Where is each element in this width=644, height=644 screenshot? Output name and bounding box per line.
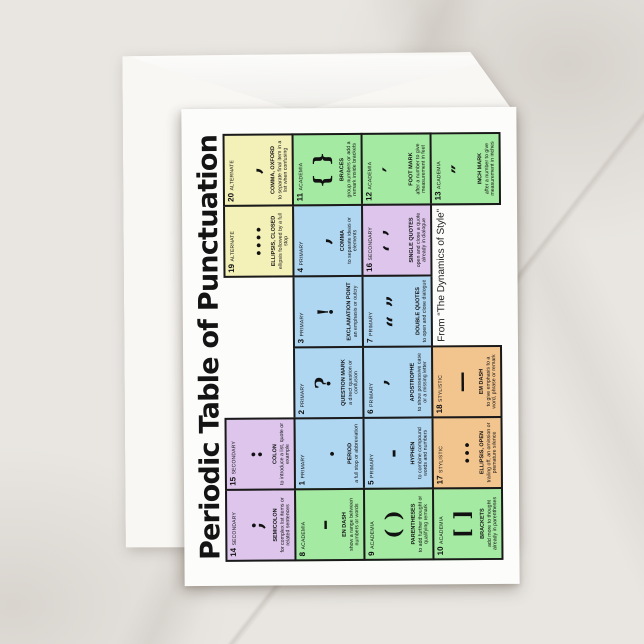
element-number: 16 <box>366 263 374 272</box>
element-symbol: ? <box>306 351 341 414</box>
element-cell-foot-mark: 12ACADEMIA′FOOT MARKafter a number to gi… <box>361 132 433 205</box>
element-cell-double-quotes: 7PRIMARY“ ”DOUBLE QUOTESto open and clos… <box>362 274 434 347</box>
element-description: a full stop or abbreviation <box>354 422 360 485</box>
element-description: after a number to give measurement in fe… <box>415 137 427 200</box>
marble-background: Periodic Table of Punctuation From “The … <box>0 0 644 644</box>
element-name: COMMA, OXFORD <box>270 139 276 202</box>
element-cell-parentheses: 9ACADEMIA( )PARENTHESESto add further th… <box>363 487 435 560</box>
element-category: SECONDARY <box>232 441 237 474</box>
element-cell-comma: 4PRIMARY,COMMAto separate ideas or eleme… <box>292 204 364 277</box>
element-number: 6 <box>367 409 375 414</box>
element-number: 5 <box>367 480 375 485</box>
element-cell-em-dash: 18STYLISTIC—EM DASHto give emphasis to a… <box>431 345 503 418</box>
element-symbol: [ ] <box>445 492 480 555</box>
element-symbol: ′ <box>373 138 408 201</box>
element-cell-brackets: 10ACADEMIA[ ]BRACKETSadd more to thought… <box>432 487 504 560</box>
element-description: show a range between numbers or words <box>348 493 360 556</box>
element-symbol: ! <box>305 280 346 343</box>
element-symbol: ’ <box>375 351 410 414</box>
element-cell-period: 1PRIMARY.PERIODa full stop or abbreviati… <box>293 417 365 490</box>
element-symbol: .... <box>236 210 271 273</box>
element-number: 3 <box>297 339 305 344</box>
element-name: SEMICOLON <box>272 494 278 557</box>
element-description: group numbers or add a remark inside bra… <box>346 138 358 201</box>
element-category: STYLISTIC <box>438 375 443 402</box>
element-description: a direct question or confusion <box>347 351 359 414</box>
element-name: COMMA <box>339 209 345 272</box>
element-symbol: ; <box>238 494 273 557</box>
element-description: to show possessive case or a missing let… <box>416 350 428 413</box>
element-cell-comma-oxford: 20ALTERNATE,COMMA, OXFORDto separate fin… <box>223 133 295 206</box>
element-name: INCH MARK <box>477 137 483 200</box>
element-description: to add further thought or qualifying rem… <box>417 492 429 555</box>
element-description: to combine compound words and numbers <box>417 421 429 484</box>
element-symbol: , <box>305 209 340 272</box>
element-number: 20 <box>227 193 235 202</box>
element-name: DOUBLE QUOTES <box>415 280 421 343</box>
element-description: add more to thought already in parenthes… <box>486 492 498 555</box>
element-name: PARENTHESES <box>410 493 416 556</box>
element-symbol: ‘ ’ <box>374 209 409 272</box>
element-category: ACADEMIA <box>368 162 373 190</box>
element-name: BRACES <box>339 138 345 201</box>
element-description: ellipsis followed by a full stop <box>277 209 289 272</box>
element-category: PRIMARY <box>300 312 305 336</box>
element-category: ACADEMIA <box>299 163 304 191</box>
element-number: 19 <box>228 264 236 273</box>
element-category: PRIMARY <box>370 454 375 478</box>
element-number: 1 <box>298 481 306 486</box>
element-number: 18 <box>436 404 444 413</box>
element-number: 10 <box>437 546 445 555</box>
element-number: 8 <box>299 552 307 557</box>
element-category: PRIMARY <box>369 312 374 336</box>
element-name: QUESTION MARK <box>340 351 346 414</box>
element-description: to give emphasis to a word, phrase or re… <box>485 350 497 413</box>
element-number: 14 <box>230 548 238 557</box>
element-cell-exclamation-point: 3PRIMARY!EXCLAMATION POINTan emphasis or… <box>293 275 365 348</box>
element-symbol: ... <box>444 421 479 484</box>
element-symbol: { } <box>304 138 339 201</box>
element-number: 7 <box>366 338 374 343</box>
element-description: trailing off, an omission or premature s… <box>486 421 498 484</box>
element-cell-ellipsis-open: 17STYLISTIC...ELLIPSIS, OPENtrailing off… <box>431 416 503 489</box>
element-number: 15 <box>229 477 237 486</box>
element-description: after a number to give measurement in in… <box>484 137 496 200</box>
element-name: BRACKETS <box>479 492 485 555</box>
element-symbol: . <box>306 422 347 485</box>
element-name: ELLIPSIS, CLOSED <box>270 210 276 273</box>
element-category: PRIMARY <box>301 454 306 478</box>
element-cell-inch-mark: 13ACADEMIA″INCH MARKafter a number to gi… <box>430 132 502 205</box>
element-number: 17 <box>436 475 444 484</box>
element-name: FOOT MARK <box>408 138 414 201</box>
element-description: to introduce a list, quote or example <box>279 422 291 485</box>
element-category: STYLISTIC <box>439 446 444 473</box>
element-cell-colon: 15SECONDARY:COLONto introduce a list, qu… <box>224 417 296 490</box>
element-number: 13 <box>434 191 442 200</box>
element-category: SECONDARY <box>232 512 237 545</box>
element-symbol: : <box>237 423 272 486</box>
element-symbol: “ ” <box>374 280 415 343</box>
envelope-flap <box>122 52 506 114</box>
element-description: for complex list items or related senten… <box>279 493 291 556</box>
element-cell-braces: 11ACADEMIA{ }BRACESgroup numbers or add … <box>292 133 364 206</box>
element-category: PRIMARY <box>300 383 305 407</box>
element-description: to open and close dialogue <box>422 279 428 342</box>
element-name: HYPHEN <box>410 422 416 485</box>
element-symbol: ″ <box>442 137 477 200</box>
element-category: ALTERNATE <box>230 160 235 191</box>
element-name: ELLIPSIS, OPEN <box>479 421 485 484</box>
element-number: 12 <box>365 192 373 201</box>
element-category: SECONDARY <box>368 227 373 260</box>
element-number: 4 <box>297 268 305 273</box>
element-symbol: – <box>307 493 342 556</box>
attribution-text: From “The Dynamics of Style” <box>431 204 501 346</box>
element-number: 9 <box>368 551 376 556</box>
card-title: Periodic Table of Punctuation <box>192 135 226 560</box>
element-name: EM DASH <box>478 350 484 413</box>
element-category: ACADEMIA <box>370 521 375 549</box>
element-cell-en-dash: 8ACADEMIA–EN DASHshow a range between nu… <box>294 488 366 561</box>
element-name: PERIOD <box>347 422 353 485</box>
element-symbol: — <box>444 350 479 413</box>
element-category: ALTERNATE <box>230 231 235 262</box>
card-design: Periodic Table of Punctuation From “The … <box>181 107 519 585</box>
element-category: ACADEMIA <box>437 161 442 189</box>
element-category: PRIMARY <box>369 383 374 407</box>
element-description: an emphasis or outcry <box>353 280 359 343</box>
element-category: PRIMARY <box>299 241 304 265</box>
element-category: ACADEMIA <box>439 516 444 544</box>
element-cell-ellipsis-closed: 19ALTERNATE....ELLIPSIS, CLOSEDellipsis … <box>223 204 295 277</box>
element-cell-semicolon: 14SECONDARY;SEMICOLONfor complex list it… <box>225 488 297 561</box>
element-description: to separate final item in a list when co… <box>277 138 289 201</box>
element-symbol: ( ) <box>376 493 411 556</box>
punctuation-card: Periodic Table of Punctuation From “The … <box>181 107 519 586</box>
element-cell-question-mark: 2PRIMARY?QUESTION MARKa direct question … <box>293 346 365 419</box>
element-symbol: , <box>235 139 270 202</box>
punctuation-grid: From “The Dynamics of Style” 1PRIMARY.PE… <box>224 133 503 561</box>
element-name: EN DASH <box>341 493 347 556</box>
element-name: COLON <box>272 423 278 486</box>
element-symbol: - <box>375 422 410 485</box>
element-cell-hyphen: 5PRIMARY-HYPHENto combine compound words… <box>362 416 434 489</box>
element-category: ACADEMIA <box>301 522 306 550</box>
element-description: to separate ideas or elements <box>346 209 358 272</box>
element-name: EXCLAMATION POINT <box>346 280 352 343</box>
element-description: open and close a quote already in dialog… <box>415 208 427 271</box>
element-cell-single-quotes: 16SECONDARY‘ ’SINGLE QUOTESopen and clos… <box>361 203 433 276</box>
element-cell-apostrophe: 6PRIMARY’APOSTROPHEto show possessive ca… <box>362 345 434 418</box>
element-number: 2 <box>298 410 306 415</box>
element-number: 11 <box>296 193 304 202</box>
element-name: SINGLE QUOTES <box>408 209 414 272</box>
element-name: APOSTROPHE <box>409 351 415 414</box>
